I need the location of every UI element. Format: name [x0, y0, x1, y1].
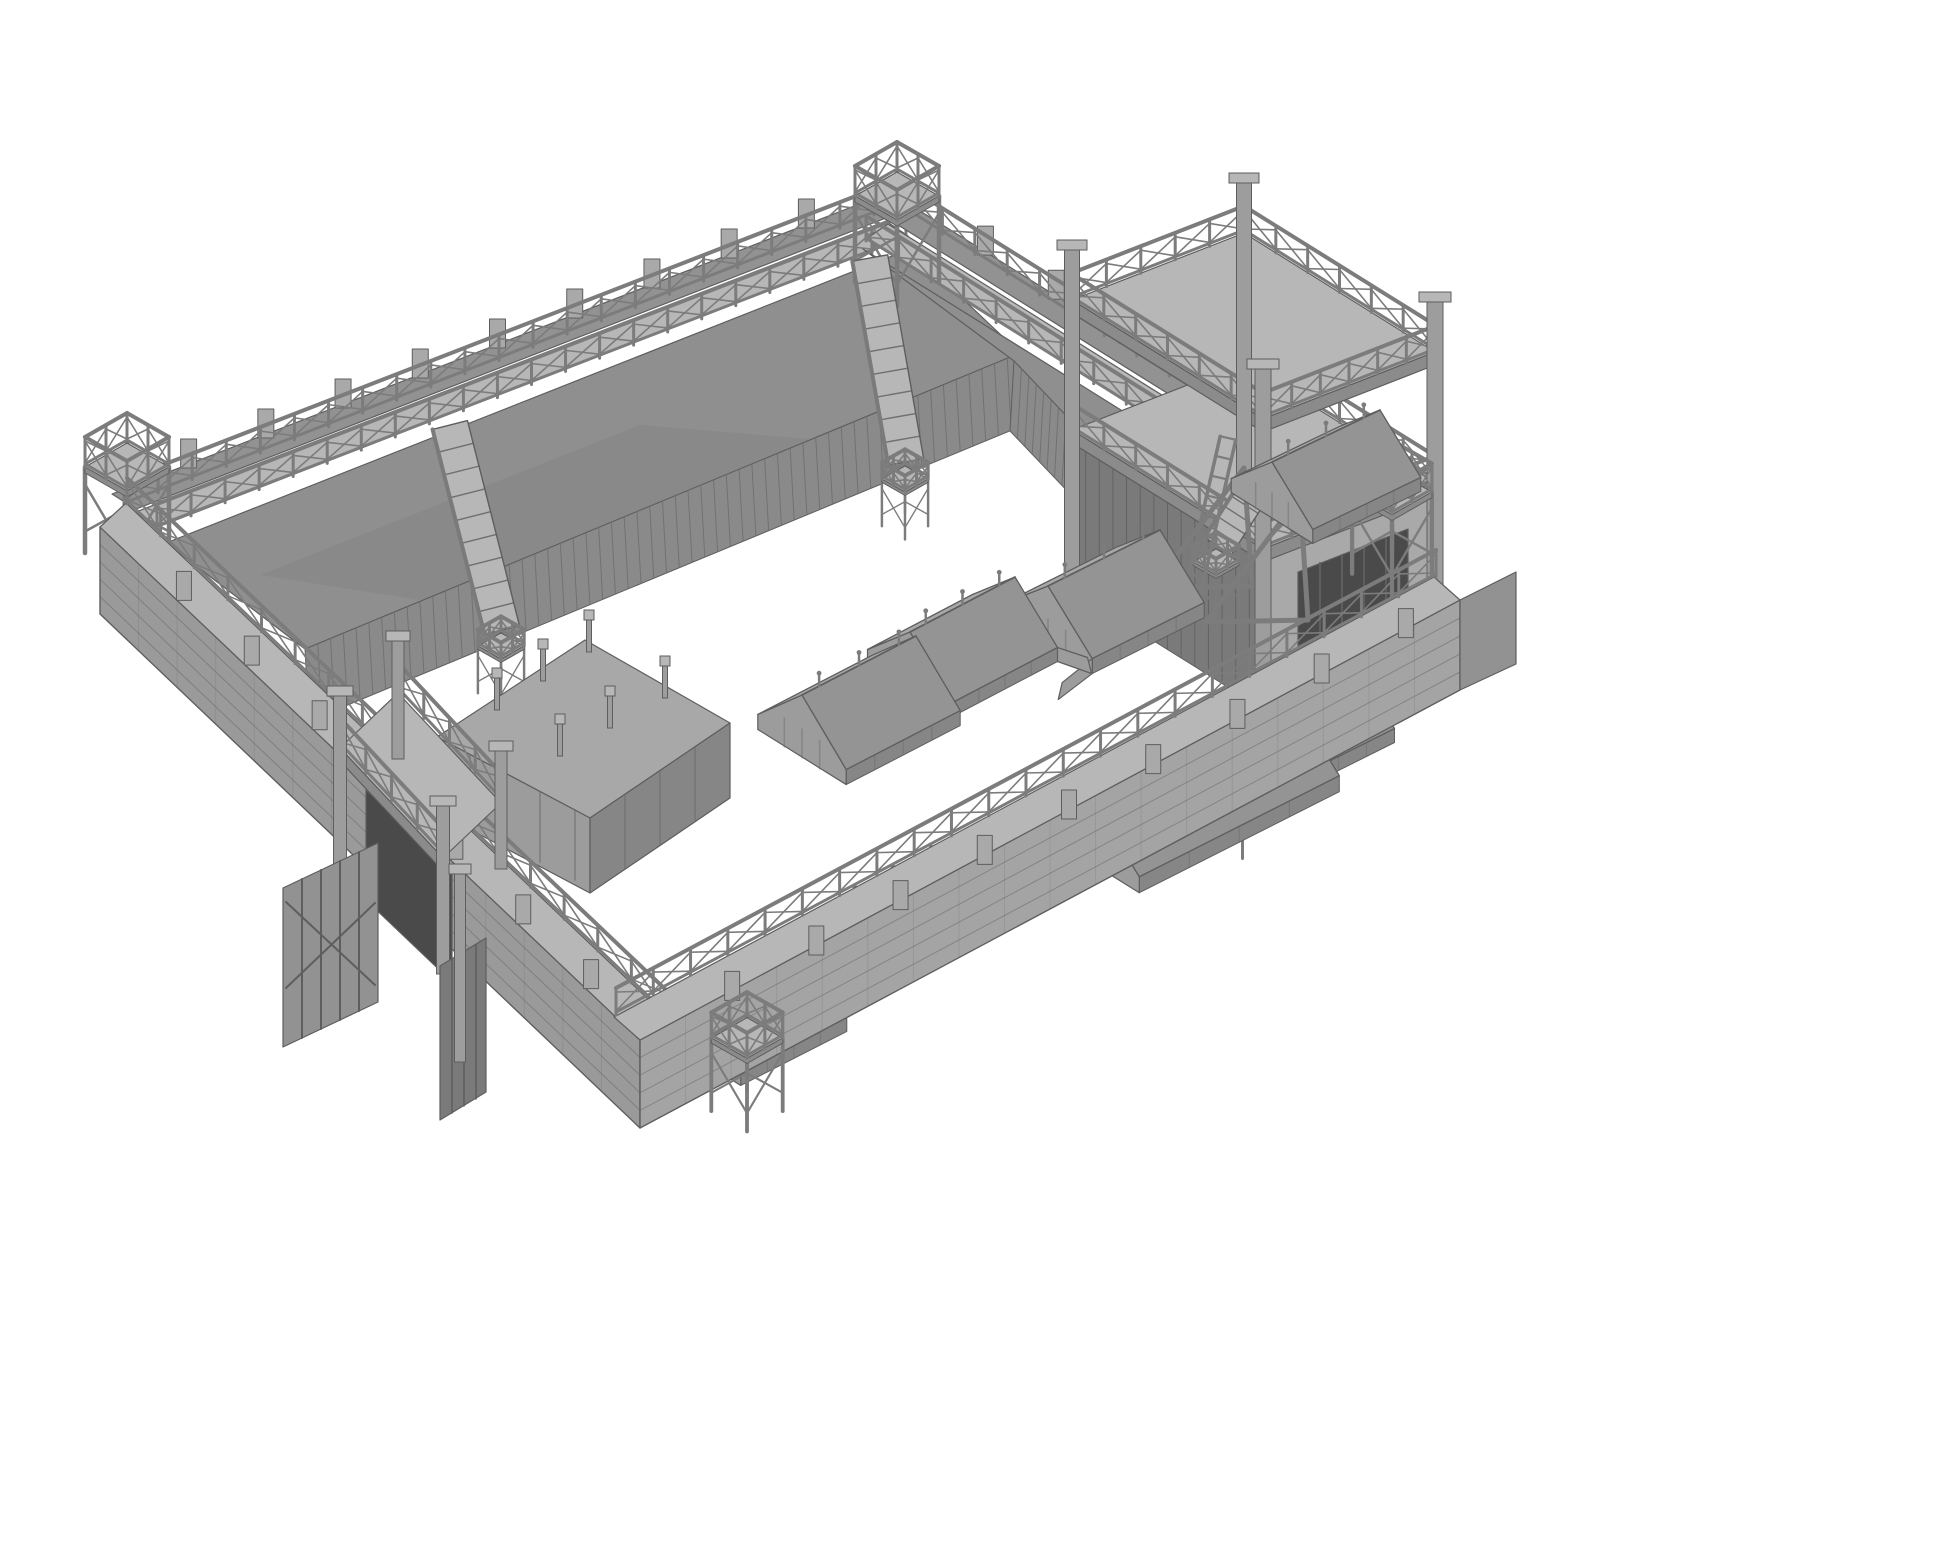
render-viewport	[0, 0, 1946, 1557]
fort-3d-render	[0, 0, 1946, 1557]
southeast-wall-end	[1460, 572, 1516, 690]
